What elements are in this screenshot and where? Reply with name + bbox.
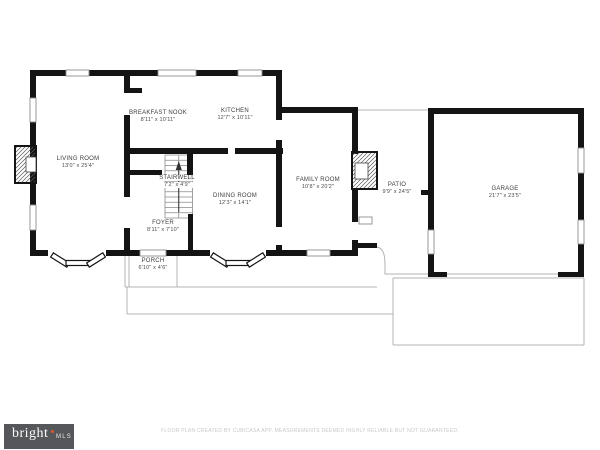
fireplace-firebox xyxy=(355,163,368,179)
wall xyxy=(127,148,228,154)
window xyxy=(30,98,36,122)
wall xyxy=(187,148,193,180)
windows xyxy=(30,70,584,256)
window xyxy=(428,230,434,254)
wall xyxy=(352,189,358,222)
door-openings xyxy=(48,120,358,256)
wall xyxy=(127,170,162,175)
door-opening xyxy=(276,227,282,245)
wall xyxy=(428,108,584,114)
logo-wordmark: bright xyxy=(12,426,48,442)
bright-mls-logo: bright MLS xyxy=(4,424,74,449)
floor-plan-page: LIVING ROOM13'0" x 25'4"BREAKFAST NOOK8'… xyxy=(0,0,600,450)
window xyxy=(66,70,89,76)
window xyxy=(307,250,330,256)
wall xyxy=(428,272,447,277)
wall xyxy=(276,245,282,256)
outline-curve xyxy=(377,247,428,274)
window xyxy=(578,220,584,244)
wall xyxy=(124,88,142,93)
wall xyxy=(421,190,428,195)
window xyxy=(158,70,196,76)
window xyxy=(578,148,584,173)
door-opening xyxy=(276,120,282,140)
wall xyxy=(188,214,193,256)
wall xyxy=(558,272,584,277)
walls xyxy=(30,70,584,277)
window xyxy=(359,217,372,224)
door-opening xyxy=(210,250,266,256)
wall xyxy=(352,107,358,154)
wall xyxy=(234,148,283,154)
disclaimer-text: FLOOR PLAN CREATED BY CUBICASA APP. MEAS… xyxy=(150,428,470,434)
door-opening xyxy=(352,222,358,240)
logo-mls-text: MLS xyxy=(56,434,72,440)
fireplace-firebox xyxy=(26,157,36,172)
window xyxy=(140,250,166,256)
floor-plan-drawing xyxy=(0,0,600,450)
wall xyxy=(276,107,358,113)
wall xyxy=(276,154,282,227)
window xyxy=(238,70,262,76)
logo-orange-dot-icon xyxy=(51,430,54,433)
wall xyxy=(124,228,130,256)
window xyxy=(30,205,36,230)
wall xyxy=(352,243,377,248)
wall xyxy=(578,108,584,277)
bays-and-fireplaces xyxy=(15,146,377,267)
door-opening xyxy=(228,148,235,154)
wall xyxy=(124,115,130,197)
